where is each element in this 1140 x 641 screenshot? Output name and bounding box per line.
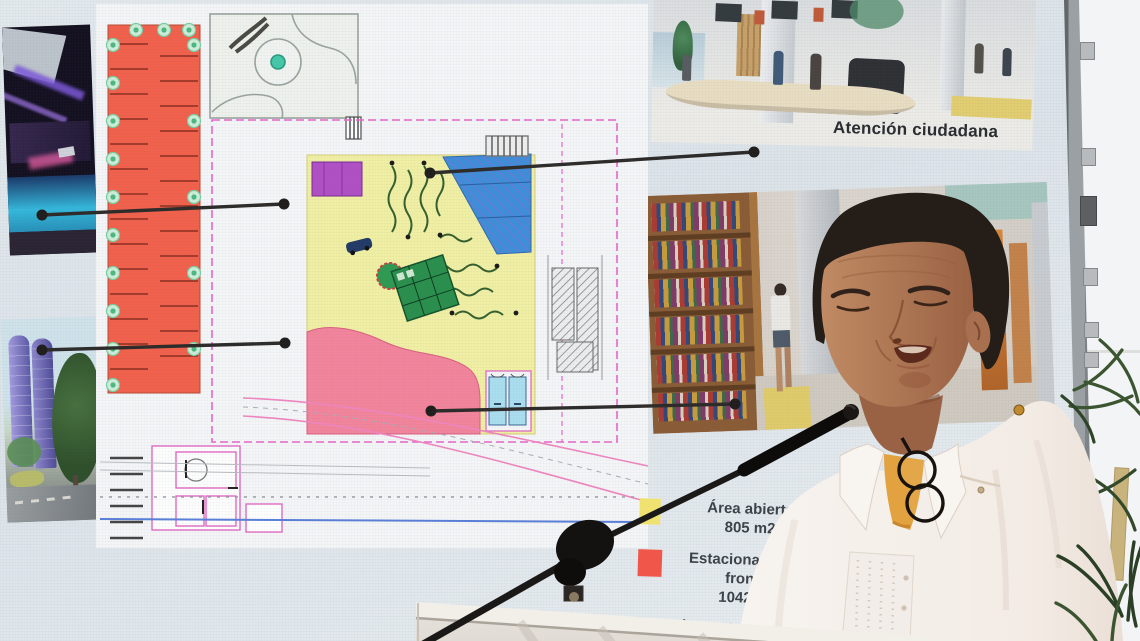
led-presentation-screen: Atención ciudadana Bibli Área abierta 80… — [0, 0, 1090, 641]
legend-swatch-red — [637, 549, 662, 577]
legend-row-parking: Estacionamiento frontal 1042 m2 — [631, 547, 843, 611]
plan-legend: Área abierta 805 m2 Estacionamiento fron… — [629, 496, 844, 641]
led-mesh-texture — [0, 0, 1090, 641]
label-atencion-ciudadana: Atención ciudadana — [833, 118, 999, 142]
bezel-clip — [1084, 352, 1099, 368]
legend-area-value: 1042 m2 — [665, 586, 832, 610]
legend-area-value: 805 m2 — [667, 516, 834, 540]
bezel-clip — [1084, 322, 1099, 338]
label-biblioteca: Bibli — [876, 216, 914, 236]
bezel-clip — [1080, 42, 1095, 60]
bezel-bracket — [1080, 196, 1097, 226]
legend-row-admin: Área administrativa — [630, 617, 840, 641]
legend-label: Estacionamiento frontal — [665, 548, 832, 591]
legend-label: Área administrativa — [664, 618, 831, 641]
legend-swatch-yellow — [639, 498, 661, 525]
photo-scene: Atención ciudadana Bibli Área abierta 80… — [0, 0, 1140, 641]
legend-row-open-area: Área abierta 805 m2 — [633, 496, 844, 541]
legend-swatch-blue — [635, 619, 659, 641]
bezel-clip — [1083, 268, 1098, 286]
bezel-clip — [1081, 148, 1096, 166]
